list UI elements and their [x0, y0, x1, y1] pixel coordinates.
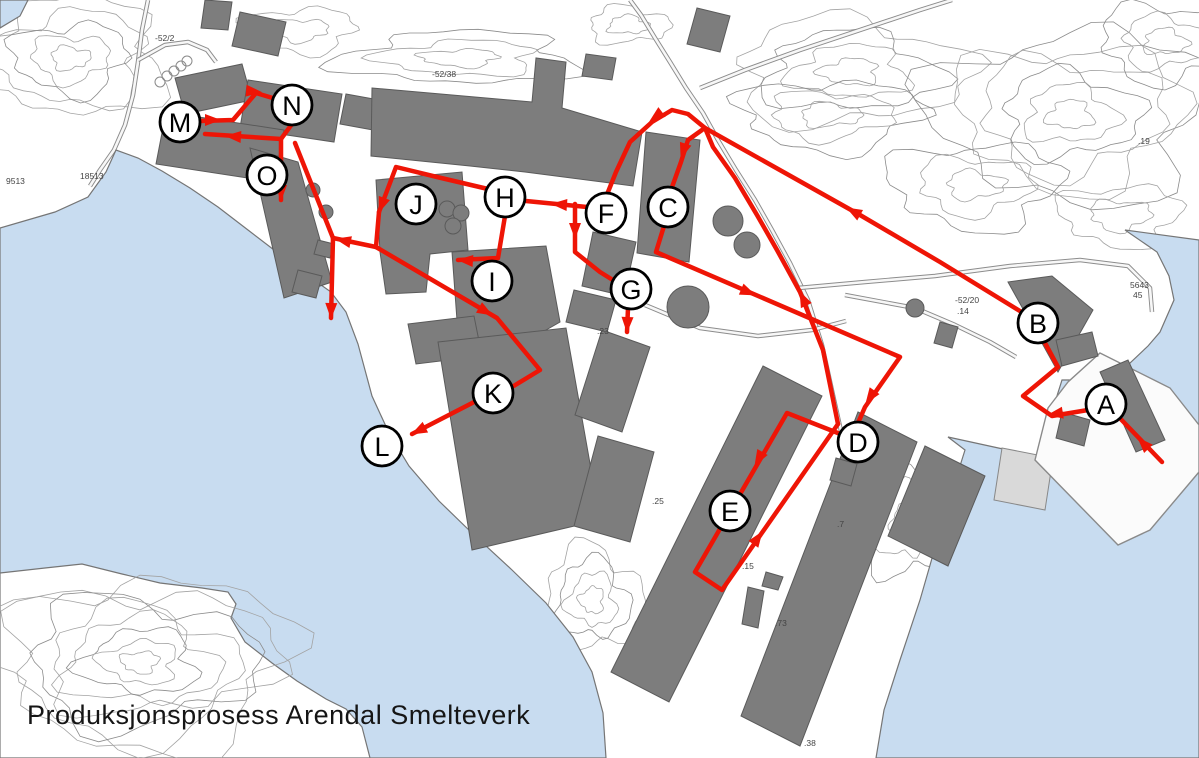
station-A: A — [1086, 384, 1126, 424]
svg-text:5643: 5643 — [1130, 280, 1149, 290]
svg-text:-52/2: -52/2 — [155, 33, 175, 43]
station-L: L — [362, 426, 402, 466]
station-O: O — [247, 155, 287, 195]
station-letter: B — [1029, 309, 1047, 339]
station-letter: A — [1097, 390, 1115, 420]
station-D: D — [838, 422, 878, 462]
map-title: Produksjonsprosess Arendal Smelteverk — [27, 700, 530, 731]
station-H: H — [485, 177, 525, 217]
station-letter: H — [495, 183, 515, 213]
station-I: I — [472, 261, 512, 301]
station-letter: L — [374, 432, 389, 462]
svg-text:.19: .19 — [1138, 136, 1150, 146]
map-stage: -52/2-52/38185139513564345-52/20.14.19.2… — [0, 0, 1199, 758]
svg-text:.23: .23 — [597, 326, 609, 336]
svg-text:.73: .73 — [775, 618, 787, 628]
svg-text:-52/20: -52/20 — [955, 295, 979, 305]
station-letter: I — [488, 267, 496, 297]
svg-text:-52/38: -52/38 — [432, 69, 456, 79]
station-F: F — [586, 193, 626, 233]
site-map-svg: -52/2-52/38185139513564345-52/20.14.19.2… — [0, 0, 1199, 758]
station-letter: J — [409, 190, 423, 220]
station-letter: M — [169, 108, 192, 138]
svg-text:9513: 9513 — [6, 176, 25, 186]
station-letter: F — [598, 199, 615, 229]
svg-text:.7: .7 — [837, 519, 844, 529]
station-B: B — [1018, 303, 1058, 343]
station-letter: K — [484, 379, 502, 409]
station-K: K — [473, 373, 513, 413]
station-N: N — [272, 85, 312, 125]
station-J: J — [396, 184, 436, 224]
svg-text:18513: 18513 — [80, 171, 104, 181]
svg-text:45: 45 — [1133, 290, 1143, 300]
station-G: G — [611, 269, 651, 309]
svg-text:.14: .14 — [957, 306, 969, 316]
station-letter: O — [256, 161, 277, 191]
station-letter: N — [282, 91, 302, 121]
station-letter: C — [658, 193, 678, 223]
station-letter: D — [848, 428, 868, 458]
station-E: E — [710, 491, 750, 531]
station-C: C — [648, 187, 688, 227]
svg-text:.38: .38 — [804, 738, 816, 748]
station-M: M — [160, 102, 200, 142]
svg-text:.25: .25 — [652, 496, 664, 506]
station-letter: G — [620, 275, 641, 305]
station-letter: E — [721, 497, 739, 527]
